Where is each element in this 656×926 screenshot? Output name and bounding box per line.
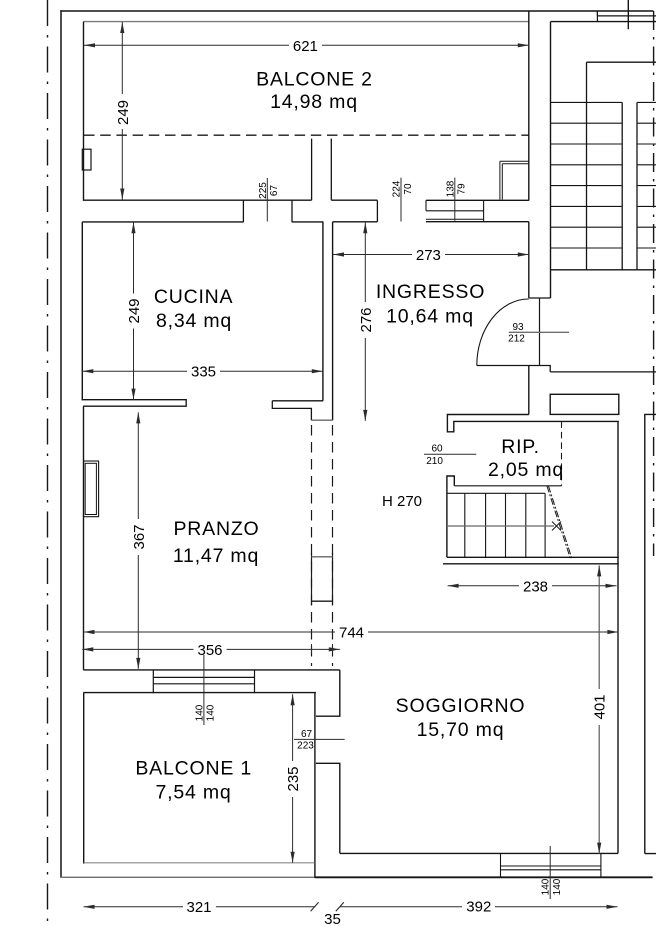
svg-text:70: 70 [403,183,414,195]
svg-text:212: 212 [508,333,525,344]
svg-text:79: 79 [457,183,468,195]
svg-text:8,34 mq: 8,34 mq [156,310,232,332]
svg-text:67: 67 [269,185,280,197]
svg-text:H 270: H 270 [382,493,422,510]
svg-text:RIP.: RIP. [501,436,540,458]
svg-text:210: 210 [426,456,443,467]
svg-text:392: 392 [466,898,491,915]
svg-text:401: 401 [592,694,609,719]
svg-text:PRANZO: PRANZO [173,518,259,540]
svg-text:60: 60 [431,444,443,455]
svg-text:744: 744 [339,625,364,642]
svg-text:249: 249 [126,298,143,323]
svg-text:335: 335 [191,364,216,381]
svg-text:BALCONE 2: BALCONE 2 [256,69,373,91]
svg-text:140: 140 [541,878,552,895]
svg-text:276: 276 [358,307,375,332]
svg-text:356: 356 [197,642,222,659]
svg-text:273: 273 [416,247,441,264]
svg-text:249: 249 [115,100,132,125]
svg-text:140: 140 [552,878,563,895]
svg-text:2,05 mq: 2,05 mq [488,459,564,481]
svg-text:140: 140 [206,704,217,721]
svg-text:15,70 mq: 15,70 mq [417,719,505,741]
svg-text:14,98 mq: 14,98 mq [270,91,358,113]
svg-text:7,54 mq: 7,54 mq [155,782,231,804]
svg-text:621: 621 [293,38,318,55]
svg-text:11,47 mq: 11,47 mq [173,545,259,567]
svg-text:BALCONE 1: BALCONE 1 [135,758,252,780]
svg-text:224: 224 [392,180,403,197]
svg-text:10,64 mq: 10,64 mq [386,306,474,328]
svg-text:140: 140 [194,704,205,721]
svg-text:238: 238 [523,578,548,595]
svg-text:223: 223 [297,740,314,751]
svg-text:CUCINA: CUCINA [154,286,234,308]
svg-text:93: 93 [512,322,524,333]
svg-text:67: 67 [301,729,313,740]
svg-text:138: 138 [445,180,456,197]
svg-text:367: 367 [131,524,148,549]
svg-text:225: 225 [258,182,269,199]
svg-text:35: 35 [324,911,341,926]
svg-text:235: 235 [285,766,302,791]
svg-text:321: 321 [186,899,211,916]
svg-text:INGRESSO: INGRESSO [376,281,485,303]
svg-text:SOGGIORNO: SOGGIORNO [396,695,526,717]
